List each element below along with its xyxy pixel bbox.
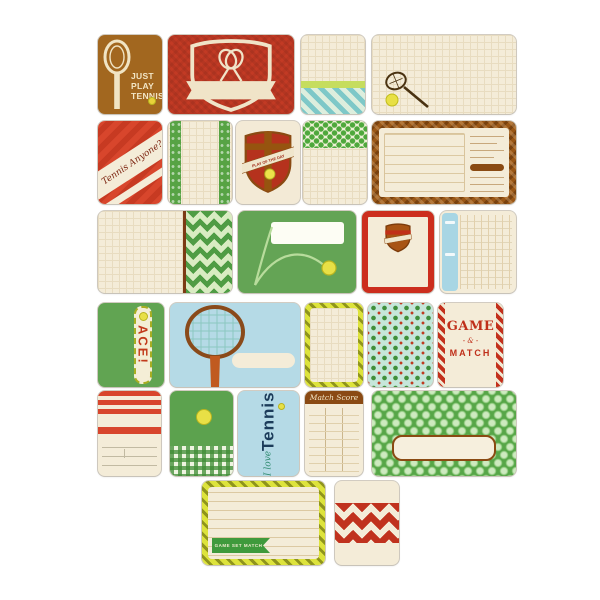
tennis-ball-icon (386, 94, 398, 106)
diamond-band (335, 503, 399, 543)
brown-pill-label (470, 164, 504, 171)
card-header: Match Score (305, 391, 363, 404)
score-ledger-card (440, 211, 516, 293)
tennis-ball-icon (139, 312, 148, 321)
blue-column (442, 213, 458, 291)
writing-area (384, 133, 465, 192)
shield-badge-icon (381, 222, 415, 254)
tennis-ball-icon (148, 97, 156, 105)
stripe-header (98, 391, 161, 417)
i-love-tennis-card: I love Tennis (238, 391, 299, 476)
flag-banner: GAME SET MATCH (212, 538, 270, 553)
play-of-the-day-badge-card: PLAY OF THE DAY (236, 121, 300, 204)
left-trim (170, 121, 181, 204)
tennis-ball-icon (278, 403, 285, 410)
racket-pattern-card (368, 303, 433, 387)
card-word: GAME (445, 319, 496, 334)
argyle-edge-grid-card (98, 211, 232, 293)
rope-border-grid-card (305, 303, 363, 387)
rope-border-lined-card: GAME SET MATCH (202, 481, 325, 565)
stripe-band (98, 427, 161, 434)
label-pill (232, 353, 294, 368)
tennis-ball-icon (196, 409, 212, 425)
ace-banner-card: ACE! (98, 303, 164, 387)
game-and-match-card: GAME - & - MATCH (438, 303, 503, 387)
divider-tick (124, 449, 125, 458)
court-bounce-icon (238, 211, 356, 293)
crossed-rackets-shield-icon (181, 37, 281, 113)
red-frame-badge-card (362, 211, 434, 293)
tennis-ball-icon (265, 169, 275, 179)
fields-column (470, 133, 504, 192)
grid-stripe-card (301, 35, 365, 114)
label-box (392, 435, 496, 461)
honeycomb-strip (303, 121, 367, 148)
card-header-text: Match Score (310, 393, 358, 402)
stripe-strip (301, 88, 365, 114)
tennis-anyone-card: Tennis Anyone? (98, 121, 162, 204)
score-table (309, 408, 359, 472)
journaling-card (372, 121, 516, 204)
match-score-card: Match Score (305, 391, 363, 476)
right-rope-trim (496, 303, 503, 387)
court-bounce-card (238, 211, 356, 293)
ogee-label-card (372, 391, 516, 476)
honeycomb-grid-card (303, 121, 367, 204)
tennis-racket-icon (170, 303, 300, 387)
card-ampersand: - & - (445, 337, 496, 345)
card-word: MATCH (445, 348, 496, 358)
ledger-columns (460, 215, 512, 289)
crest-banner-card (168, 35, 294, 114)
argyle-strip (186, 211, 232, 293)
tennis-racket-icon (380, 71, 444, 111)
ace-vertical-banner: ACE! (134, 306, 152, 384)
red-diamond-card (335, 481, 399, 565)
product-sheet: JUST PLAY TENNIS (0, 0, 600, 600)
flag-text: GAME SET MATCH (215, 543, 268, 548)
left-rope-trim (438, 303, 445, 387)
card-word: JUST (131, 71, 162, 81)
gingham-strip (170, 446, 233, 476)
card-word: ACE! (136, 325, 151, 365)
tennis-ball-icon (322, 261, 336, 275)
green-trim-grid-card (168, 121, 232, 204)
card-word: TENNIS (131, 91, 162, 101)
card-script-text: I love (264, 451, 274, 476)
ball-gingham-card (170, 391, 233, 476)
blue-racket-card (170, 303, 300, 387)
shield-badge-icon: PLAY OF THE DAY (242, 129, 294, 195)
card-word: PLAY (131, 81, 162, 91)
grass-strip (301, 81, 365, 88)
ruled-lines (102, 439, 157, 472)
card-word: Tennis (259, 391, 279, 451)
right-trim (219, 121, 230, 204)
just-play-tennis-card: JUST PLAY TENNIS (98, 35, 162, 114)
red-stripe-journal-card (98, 391, 161, 476)
racket-doodle-card (372, 35, 516, 114)
